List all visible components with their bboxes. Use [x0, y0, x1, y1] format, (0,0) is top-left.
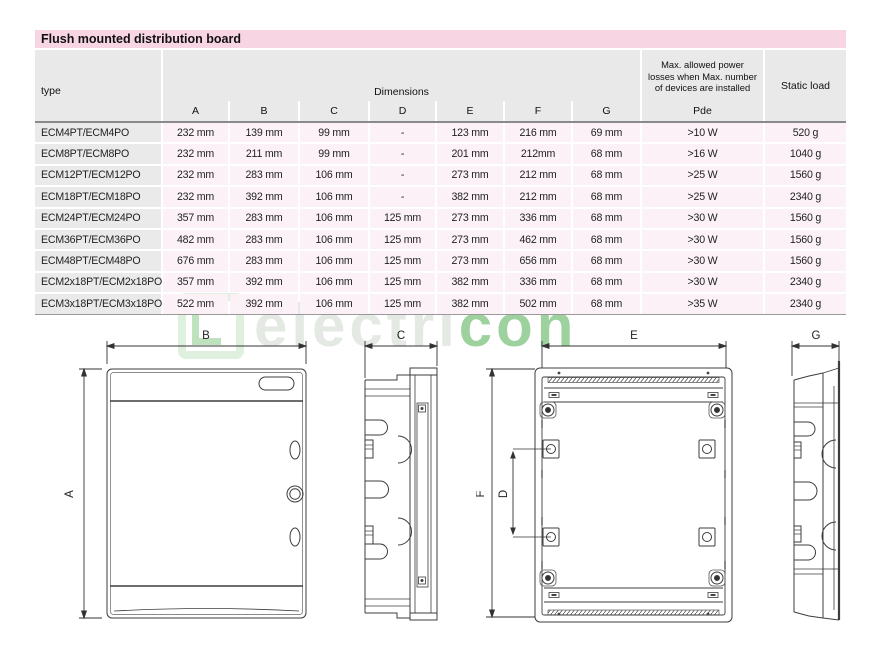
row-value-pde: >30 W	[642, 273, 763, 292]
row-value-c: 106 mm	[300, 230, 368, 249]
row-value-b: 283 mm	[230, 166, 298, 185]
row-value-e: 273 mm	[437, 251, 503, 270]
row-type: ECM18PT/ECM18PO	[35, 187, 161, 206]
row-value-b: 392 mm	[230, 294, 298, 313]
row-value-g: 68 mm	[573, 209, 640, 228]
row-value-e: 123 mm	[437, 123, 503, 142]
row-value-g: 68 mm	[573, 251, 640, 270]
row-value-b: 211 mm	[230, 144, 298, 163]
row-value-a: 232 mm	[163, 144, 228, 163]
row-value-d: 125 mm	[370, 251, 435, 270]
table-row: ECM3x18PT/ECM3x18PO522 mm392 mm106 mm125…	[35, 294, 846, 313]
row-value-b: 283 mm	[230, 251, 298, 270]
row-value-pde: >30 W	[642, 251, 763, 270]
header-dim-g: G	[573, 101, 640, 121]
row-value-a: 522 mm	[163, 294, 228, 313]
row-value-g: 68 mm	[573, 273, 640, 292]
header-dim-f: F	[505, 101, 571, 121]
back-view-drawing: E F D	[476, 328, 742, 630]
row-value-static: 1560 g	[765, 251, 846, 270]
row-value-e: 382 mm	[437, 273, 503, 292]
row-value-e: 273 mm	[437, 166, 503, 185]
row-value-b: 392 mm	[230, 187, 298, 206]
row-type: ECM12PT/ECM12PO	[35, 166, 161, 185]
table-row: ECM8PT/ECM8PO232 mm211 mm99 mm-201 mm212…	[35, 144, 846, 163]
datasheet-page: electricon Flush mounted distribution bo…	[0, 0, 883, 655]
header-dim-a: A	[163, 101, 228, 121]
row-value-d: 125 mm	[370, 273, 435, 292]
row-value-pde: >10 W	[642, 123, 763, 142]
row-value-a: 232 mm	[163, 123, 228, 142]
row-value-pde: >30 W	[642, 209, 763, 228]
header-dim-b: B	[230, 101, 298, 121]
row-value-e: 273 mm	[437, 209, 503, 228]
row-value-c: 99 mm	[300, 144, 368, 163]
row-value-c: 99 mm	[300, 123, 368, 142]
table-row: ECM12PT/ECM12PO232 mm283 mm106 mm-273 mm…	[35, 166, 846, 185]
side-view-c-drawing: C	[338, 328, 448, 630]
row-value-pde: >30 W	[642, 230, 763, 249]
row-type: ECM36PT/ECM36PO	[35, 230, 161, 249]
dim-label-f: F	[476, 490, 487, 497]
header-dim-c: C	[300, 101, 368, 121]
row-value-static: 2340 g	[765, 294, 846, 313]
row-value-a: 232 mm	[163, 187, 228, 206]
row-value-g: 68 mm	[573, 144, 640, 163]
table-row: ECM18PT/ECM18PO232 mm392 mm106 mm-382 mm…	[35, 187, 846, 206]
header-pde: Pde	[642, 101, 763, 121]
row-value-g: 69 mm	[573, 123, 640, 142]
row-value-f: 502 mm	[505, 294, 571, 313]
row-type: ECM2x18PT/ECM2x18PO	[35, 273, 161, 292]
door-handle	[259, 377, 294, 390]
row-value-pde: >25 W	[642, 166, 763, 185]
header-power-losses-line3: of devices are installed	[655, 82, 750, 93]
spec-table: Flush mounted distribution board type Di…	[35, 30, 846, 315]
row-value-c: 106 mm	[300, 187, 368, 206]
table-row: ECM2x18PT/ECM2x18PO357 mm392 mm106 mm125…	[35, 273, 846, 292]
row-value-pde: >25 W	[642, 187, 763, 206]
row-value-b: 392 mm	[230, 273, 298, 292]
row-value-g: 68 mm	[573, 294, 640, 313]
row-value-c: 106 mm	[300, 273, 368, 292]
row-value-static: 1560 g	[765, 166, 846, 185]
row-value-c: 106 mm	[300, 166, 368, 185]
row-type: ECM48PT/ECM48PO	[35, 251, 161, 270]
row-value-f: 462 mm	[505, 230, 571, 249]
row-value-f: 336 mm	[505, 209, 571, 228]
row-value-e: 382 mm	[437, 187, 503, 206]
header-static-load: Static load	[765, 50, 846, 121]
row-value-d: 125 mm	[370, 294, 435, 313]
row-value-e: 382 mm	[437, 294, 503, 313]
row-value-d: -	[370, 166, 435, 185]
row-value-g: 68 mm	[573, 166, 640, 185]
row-value-b: 283 mm	[230, 230, 298, 249]
row-type: ECM24PT/ECM24PO	[35, 209, 161, 228]
row-value-d: 125 mm	[370, 230, 435, 249]
row-value-d: 125 mm	[370, 209, 435, 228]
row-value-e: 201 mm	[437, 144, 503, 163]
header-dimensions: Dimensions	[163, 50, 640, 101]
row-value-d: -	[370, 187, 435, 206]
row-value-static: 1040 g	[765, 144, 846, 163]
row-type: ECM4PT/ECM4PO	[35, 123, 161, 142]
row-value-c: 106 mm	[300, 251, 368, 270]
row-value-a: 232 mm	[163, 166, 228, 185]
side-view-g-drawing: G	[763, 328, 875, 630]
mounting-tabs	[543, 440, 715, 546]
row-value-c: 106 mm	[300, 294, 368, 313]
row-value-static: 1560 g	[765, 230, 846, 249]
row-value-static: 1560 g	[765, 209, 846, 228]
table-body: ECM4PT/ECM4PO232 mm139 mm99 mm-123 mm216…	[35, 123, 846, 315]
header-dim-e: E	[437, 101, 503, 121]
header-power-losses-line2: losses when Max. number	[648, 71, 757, 82]
row-value-g: 68 mm	[573, 187, 640, 206]
row-value-static: 2340 g	[765, 187, 846, 206]
row-value-a: 676 mm	[163, 251, 228, 270]
row-value-d: -	[370, 123, 435, 142]
header-type: type	[35, 50, 161, 101]
row-value-f: 216 mm	[505, 123, 571, 142]
dim-label-g: G	[812, 330, 821, 342]
table-row: ECM36PT/ECM36PO482 mm283 mm106 mm125 mm2…	[35, 230, 846, 249]
row-value-a: 357 mm	[163, 209, 228, 228]
row-value-a: 357 mm	[163, 273, 228, 292]
table-row: ECM48PT/ECM48PO676 mm283 mm106 mm125 mm2…	[35, 251, 846, 270]
row-value-static: 2340 g	[765, 273, 846, 292]
row-type: ECM3x18PT/ECM3x18PO	[35, 294, 161, 313]
row-value-f: 212mm	[505, 144, 571, 163]
row-value-d: -	[370, 144, 435, 163]
table-row: ECM4PT/ECM4PO232 mm139 mm99 mm-123 mm216…	[35, 123, 846, 142]
header-type-fill	[35, 101, 161, 121]
row-type: ECM8PT/ECM8PO	[35, 144, 161, 163]
row-value-b: 139 mm	[230, 123, 298, 142]
row-value-e: 273 mm	[437, 230, 503, 249]
table-header: type Dimensions Max. allowed power losse…	[35, 50, 846, 123]
row-value-pde: >35 W	[642, 294, 763, 313]
dim-label-b: B	[202, 330, 210, 342]
header-dim-d: D	[370, 101, 435, 121]
row-value-a: 482 mm	[163, 230, 228, 249]
row-value-c: 106 mm	[300, 209, 368, 228]
row-value-b: 283 mm	[230, 209, 298, 228]
table-title: Flush mounted distribution board	[35, 30, 846, 48]
corner-clips	[540, 402, 725, 586]
row-value-f: 336 mm	[505, 273, 571, 292]
dim-label-a: A	[64, 490, 76, 498]
header-power-losses: Max. allowed power losses when Max. numb…	[642, 50, 763, 101]
dim-label-c: C	[397, 330, 405, 342]
header-power-losses-line1: Max. allowed power	[661, 59, 744, 70]
row-value-static: 520 g	[765, 123, 846, 142]
row-value-f: 656 mm	[505, 251, 571, 270]
table-row: ECM24PT/ECM24PO357 mm283 mm106 mm125 mm2…	[35, 209, 846, 228]
row-value-g: 68 mm	[573, 230, 640, 249]
row-value-pde: >16 W	[642, 144, 763, 163]
row-value-f: 212 mm	[505, 166, 571, 185]
dim-label-d: D	[498, 490, 510, 498]
row-value-f: 212 mm	[505, 187, 571, 206]
dim-label-e: E	[630, 330, 638, 342]
front-view-drawing: B A	[58, 328, 318, 630]
